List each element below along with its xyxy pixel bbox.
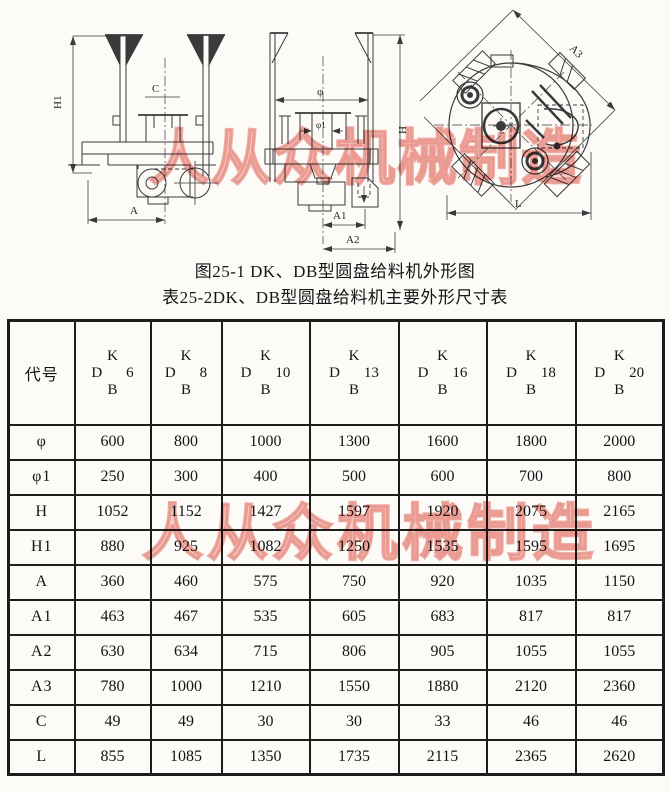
model-variant-bottom: B — [400, 382, 486, 399]
model-header-cell: KD20B — [576, 321, 664, 425]
value-cell: 925 — [151, 530, 222, 565]
scanned-document-page: H1 C — [0, 0, 670, 791]
row-label: A3 — [9, 670, 75, 705]
value-cell: 400 — [222, 460, 310, 495]
table-row: φ60080010001300160018002000 — [9, 425, 664, 460]
model-variant-top: K — [223, 348, 309, 365]
value-cell: 2365 — [487, 740, 576, 775]
value-cell: 1597 — [310, 495, 399, 530]
table-row: A263063471580690510551055 — [9, 635, 664, 670]
value-cell: 700 — [487, 460, 576, 495]
value-cell: 2115 — [399, 740, 487, 775]
row-label: L — [9, 740, 75, 775]
value-cell: 780 — [75, 670, 151, 705]
model-designation: D18 — [488, 365, 575, 382]
value-cell: 1350 — [222, 740, 310, 775]
value-cell: 250 — [75, 460, 151, 495]
value-cell: 49 — [75, 705, 151, 740]
value-cell: 1210 — [222, 670, 310, 705]
code-header-cell: 代号 — [9, 321, 75, 425]
table-row: H1052115214271597192020752165 — [9, 495, 664, 530]
row-label: φ1 — [9, 460, 75, 495]
value-cell: 905 — [399, 635, 487, 670]
value-cell: 1150 — [576, 565, 664, 600]
value-cell: 1000 — [222, 425, 310, 460]
value-cell: 1600 — [399, 425, 487, 460]
table-row: A36046057575092010351150 — [9, 565, 664, 600]
value-cell: 2075 — [487, 495, 576, 530]
model-variant-bottom: B — [223, 382, 309, 399]
model-designation: D6 — [76, 365, 150, 382]
table-row: A1463467535605683817817 — [9, 600, 664, 635]
model-designation: D16 — [400, 365, 486, 382]
value-cell: 1055 — [576, 635, 664, 670]
model-designation: D8 — [152, 365, 221, 382]
model-variant-bottom: B — [577, 382, 663, 399]
value-cell: 1800 — [487, 425, 576, 460]
value-cell: 300 — [151, 460, 222, 495]
table-row: A3780100012101550188021202360 — [9, 670, 664, 705]
model-variant-bottom: B — [311, 382, 398, 399]
value-cell: 1055 — [487, 635, 576, 670]
value-cell: 33 — [399, 705, 487, 740]
value-cell: 500 — [310, 460, 399, 495]
value-cell: 2120 — [487, 670, 576, 705]
value-cell: 460 — [151, 565, 222, 600]
model-header-cell: KD16B — [399, 321, 487, 425]
model-variant-top: K — [400, 348, 486, 365]
value-cell: 1920 — [399, 495, 487, 530]
value-cell: 2620 — [576, 740, 664, 775]
model-header-cell: KD10B — [222, 321, 310, 425]
value-cell: 1035 — [487, 565, 576, 600]
value-cell: 1695 — [576, 530, 664, 565]
value-cell: 855 — [75, 740, 151, 775]
row-label: H1 — [9, 530, 75, 565]
model-variant-top: K — [488, 348, 575, 365]
model-header-cell: KD6B — [75, 321, 151, 425]
value-cell: 2360 — [576, 670, 664, 705]
dim-label-phi: φ — [317, 86, 323, 98]
value-cell: 1000 — [151, 670, 222, 705]
value-cell: 600 — [399, 460, 487, 495]
dim-label-a2: A2 — [346, 234, 359, 246]
dim-label-c: C — [152, 83, 159, 95]
row-label: A1 — [9, 600, 75, 635]
value-cell: 880 — [75, 530, 151, 565]
row-label: A2 — [9, 635, 75, 670]
dimensions-table: 代号 KD6B KD8B KD10B KD13B KD16B KD18B KD2… — [7, 319, 665, 776]
top-view-drawing: A3 — [420, 0, 670, 235]
table-row: L855108513501735211523652620 — [9, 740, 664, 775]
value-cell: 683 — [399, 600, 487, 635]
dim-label-a1: A1 — [333, 210, 346, 222]
value-cell: 1427 — [222, 495, 310, 530]
value-cell: 1880 — [399, 670, 487, 705]
model-variant-bottom: B — [76, 382, 150, 399]
value-cell: 1550 — [310, 670, 399, 705]
value-cell: 1085 — [151, 740, 222, 775]
table-row: φ1250300400500600700800 — [9, 460, 664, 495]
value-cell: 817 — [487, 600, 576, 635]
value-cell: 806 — [310, 635, 399, 670]
section-view-drawing: H φ φ1 — [263, 6, 428, 258]
figure-caption: 图25-1 DK、DB型圆盘给料机外形图 — [0, 257, 670, 282]
value-cell: 715 — [222, 635, 310, 670]
value-cell: 800 — [576, 460, 664, 495]
table-caption: 表25-2DK、DB型圆盘给料机主要外形尺寸表 — [0, 283, 670, 308]
model-variant-bottom: B — [488, 382, 575, 399]
value-cell: 46 — [487, 705, 576, 740]
model-variant-top: K — [577, 348, 663, 365]
row-label: H — [9, 495, 75, 530]
model-header-cell: KD18B — [487, 321, 576, 425]
front-view-drawing: H1 C — [50, 6, 265, 251]
value-cell: 30 — [222, 705, 310, 740]
dim-label-h: H — [397, 126, 409, 134]
dim-label-phi1: φ1 — [316, 120, 326, 130]
model-variant-bottom: B — [152, 382, 221, 399]
table-row: H188092510821250153515951695 — [9, 530, 664, 565]
value-cell: 800 — [151, 425, 222, 460]
header-row: 代号 KD6B KD8B KD10B KD13B KD16B KD18B KD2… — [9, 321, 664, 425]
row-label: A — [9, 565, 75, 600]
value-cell: 2000 — [576, 425, 664, 460]
model-variant-top: K — [76, 348, 150, 365]
value-cell: 1535 — [399, 530, 487, 565]
value-cell: 634 — [151, 635, 222, 670]
row-label: C — [9, 705, 75, 740]
model-designation: D13 — [311, 365, 398, 382]
model-designation: D20 — [577, 365, 663, 382]
model-header-cell: KD13B — [310, 321, 399, 425]
model-header-cell: KD8B — [151, 321, 222, 425]
table-row: C49493030334646 — [9, 705, 664, 740]
value-cell: 30 — [310, 705, 399, 740]
value-cell: 467 — [151, 600, 222, 635]
value-cell: 360 — [75, 565, 151, 600]
value-cell: 1595 — [487, 530, 576, 565]
dim-label-a3: A3 — [567, 43, 585, 61]
value-cell: 1052 — [75, 495, 151, 530]
value-cell: 630 — [75, 635, 151, 670]
value-cell: 600 — [75, 425, 151, 460]
value-cell: 49 — [151, 705, 222, 740]
dim-label-l: L — [515, 198, 522, 210]
model-variant-top: K — [152, 348, 221, 365]
value-cell: 575 — [222, 565, 310, 600]
dim-label-h1: H1 — [52, 96, 64, 109]
value-cell: 605 — [310, 600, 399, 635]
value-cell: 2165 — [576, 495, 664, 530]
value-cell: 1735 — [310, 740, 399, 775]
model-variant-top: K — [311, 348, 398, 365]
model-designation: D10 — [223, 365, 309, 382]
value-cell: 46 — [576, 705, 664, 740]
value-cell: 535 — [222, 600, 310, 635]
value-cell: 1300 — [310, 425, 399, 460]
row-label: φ — [9, 425, 75, 460]
value-cell: 750 — [310, 565, 399, 600]
value-cell: 920 — [399, 565, 487, 600]
value-cell: 817 — [576, 600, 664, 635]
value-cell: 1152 — [151, 495, 222, 530]
dim-label-a: A — [130, 205, 138, 217]
value-cell: 1082 — [222, 530, 310, 565]
value-cell: 463 — [75, 600, 151, 635]
value-cell: 1250 — [310, 530, 399, 565]
